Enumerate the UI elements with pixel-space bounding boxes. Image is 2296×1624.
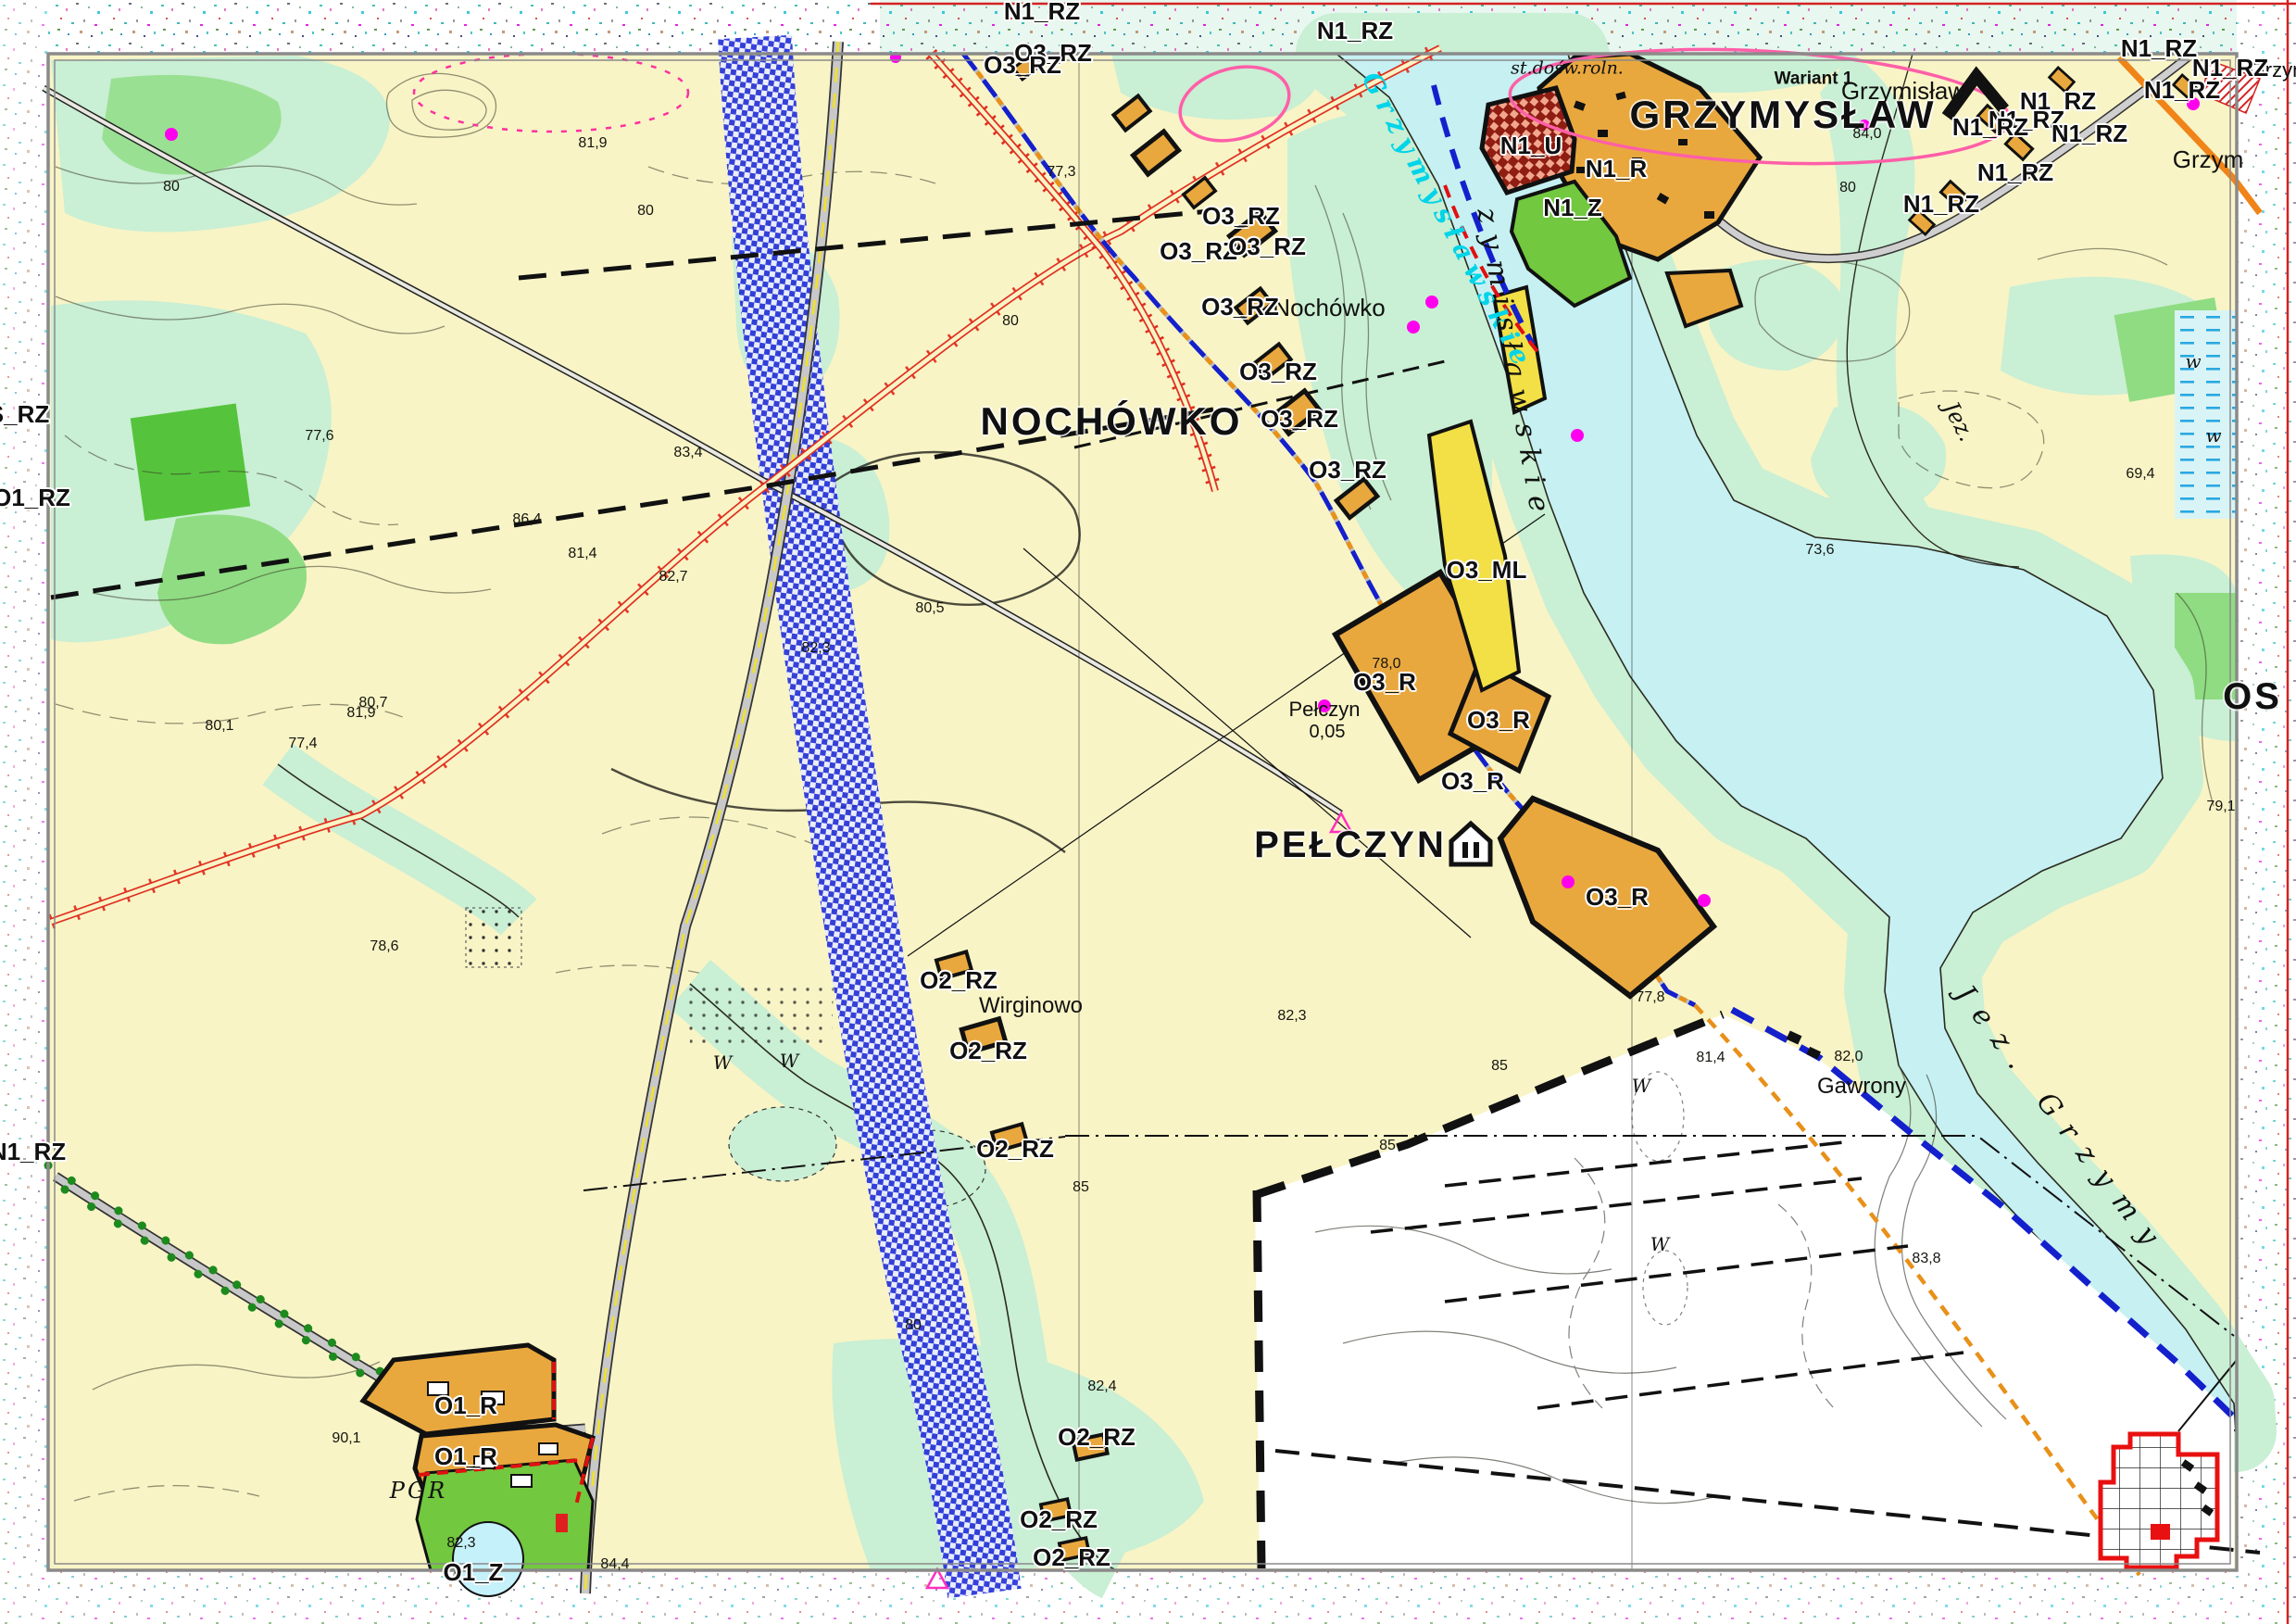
pond bbox=[453, 1522, 523, 1596]
zone-n1u bbox=[1482, 88, 1575, 193]
red-filled-block bbox=[2151, 1524, 2170, 1540]
scanned-plan-map-sheet: GRZYMYSŁAWNOCHÓWKOPEŁCZYNOSNochówkoPełcz… bbox=[0, 0, 2296, 1624]
map-drawing bbox=[0, 0, 2296, 1624]
